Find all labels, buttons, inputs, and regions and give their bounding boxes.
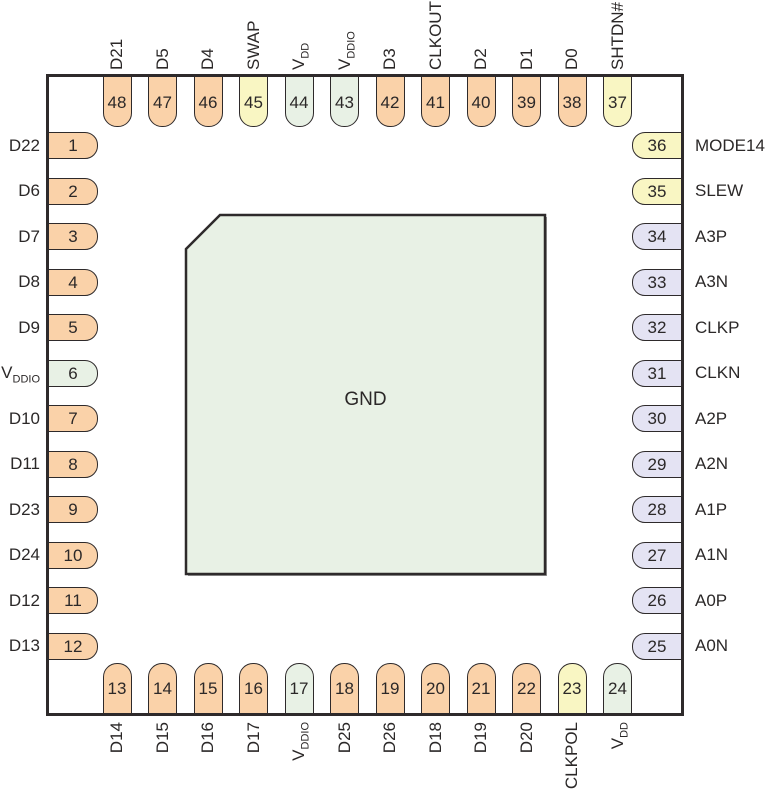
- pin-2-label: D6: [0, 181, 40, 201]
- pin-30: 30: [632, 405, 684, 432]
- pin-21: 21: [467, 663, 496, 716]
- pin-43-label: VDDIO: [335, 0, 355, 70]
- pin-27-number: 27: [648, 547, 667, 564]
- pin-7-label: D10: [0, 409, 40, 429]
- pin-9-number: 9: [68, 501, 77, 518]
- pin-22-label-text: D20: [517, 722, 536, 753]
- pin-33-number: 33: [648, 274, 667, 291]
- pin-25-label: A0N: [695, 636, 765, 656]
- pin-34-number: 34: [648, 228, 667, 245]
- pin-35-number: 35: [648, 183, 667, 200]
- pin-39: 39: [512, 74, 541, 127]
- pin-32-label-text: CLKP: [695, 318, 739, 337]
- pin-11-label-text: D12: [9, 591, 40, 610]
- pin-23-number: 23: [563, 680, 582, 697]
- pin-33: 33: [632, 269, 684, 296]
- pin-4-number: 4: [68, 274, 77, 291]
- pin-18: 18: [330, 663, 359, 716]
- pin-42: 42: [376, 74, 405, 127]
- pin-32-number: 32: [648, 319, 667, 336]
- pin-35: 35: [632, 178, 684, 205]
- pin-18-number: 18: [335, 680, 354, 697]
- pin-44-label: VDD: [289, 0, 309, 70]
- pin-47-label: D5: [153, 0, 173, 70]
- pin-31-label: CLKN: [695, 363, 765, 383]
- pin-19-label-text: D26: [380, 722, 399, 753]
- pin-41-label: CLKOUT: [426, 0, 446, 70]
- pin-20-number: 20: [426, 680, 445, 697]
- pin-15-label-text: D16: [198, 722, 217, 753]
- pin-48: 48: [103, 74, 132, 127]
- pin-11-label: D12: [0, 591, 40, 611]
- pin-16: 16: [239, 663, 268, 716]
- pin-8-number: 8: [68, 456, 77, 473]
- pin-45-number: 45: [244, 94, 263, 111]
- pin-5: 5: [46, 314, 98, 341]
- pin-31-label-text: CLKN: [695, 363, 740, 382]
- pin-44-label-subscript: DD: [299, 43, 311, 59]
- pin-6-label-text: V: [1, 363, 12, 382]
- pin-28: 28: [632, 496, 684, 523]
- pin-25: 25: [632, 633, 684, 660]
- pin-43-number: 43: [335, 94, 354, 111]
- pin-31: 31: [632, 360, 684, 387]
- pin-11-number: 11: [64, 592, 82, 609]
- pin-37-label-text: SHTDN#: [608, 2, 627, 70]
- pin-37-label: SHTDN#: [608, 0, 628, 70]
- pin-46-label: D4: [198, 0, 218, 70]
- pin-46-number: 46: [199, 94, 218, 111]
- pin-19: 19: [376, 663, 405, 716]
- pin-7-number: 7: [68, 410, 77, 427]
- pin-12-label-text: D13: [9, 636, 40, 655]
- pin-45-label-text: SWAP: [244, 21, 263, 70]
- pin-27-label: A1N: [695, 545, 765, 565]
- pin-6: 6: [46, 360, 98, 387]
- pin-11: 11: [46, 587, 98, 614]
- pin-40: 40: [467, 74, 496, 127]
- pin-37: 37: [603, 74, 632, 127]
- pin-27: 27: [632, 542, 684, 569]
- pin-10-label-text: D24: [9, 545, 40, 564]
- pin-15-number: 15: [199, 680, 218, 697]
- pin-45-label: SWAP: [244, 0, 264, 70]
- pin-36-number: 36: [648, 137, 667, 154]
- pin-20-label: D18: [426, 722, 446, 795]
- pin-22: 22: [512, 663, 541, 716]
- pin-22-number: 22: [517, 680, 536, 697]
- pin-40-number: 40: [472, 94, 491, 111]
- pin-21-number: 21: [472, 680, 491, 697]
- pin-8-label-text: D11: [10, 454, 40, 473]
- pin-30-number: 30: [648, 410, 667, 427]
- pin-47-label-text: D5: [153, 48, 172, 70]
- pin-20-label-text: D18: [426, 722, 445, 753]
- pin-25-label-text: A0N: [695, 636, 728, 655]
- pin-12: 12: [46, 633, 98, 660]
- pin-38-number: 38: [563, 94, 582, 111]
- pin-2: 2: [46, 178, 98, 205]
- pin-32: 32: [632, 314, 684, 341]
- pin-6-number: 6: [68, 365, 77, 382]
- pin-48-label: D21: [107, 0, 127, 70]
- pin-10-label: D24: [0, 545, 40, 565]
- pin-28-number: 28: [648, 501, 667, 518]
- pin-5-label: D9: [0, 318, 40, 338]
- pin-9-label: D23: [0, 500, 40, 520]
- pin-34-label: A3P: [695, 227, 765, 247]
- pin-38: 38: [558, 74, 587, 127]
- pin-5-label-text: D9: [18, 318, 40, 337]
- pin-23: 23: [558, 663, 587, 716]
- pin-37-number: 37: [608, 94, 627, 111]
- pin-13-label: D14: [107, 722, 127, 795]
- pin-33-label: A3N: [695, 272, 765, 292]
- pin-17-label: VDDIO: [289, 722, 309, 795]
- pin-16-number: 16: [244, 680, 263, 697]
- pin-15: 15: [194, 663, 223, 716]
- pin-39-label-text: D1: [517, 48, 536, 70]
- pin-30-label: A2P: [695, 409, 765, 429]
- pin-45: 45: [239, 74, 268, 127]
- pin-32-label: CLKP: [695, 318, 765, 338]
- pin-14-label: D15: [153, 722, 173, 795]
- pin-14-number: 14: [153, 680, 172, 697]
- pin-26-number: 26: [648, 592, 667, 609]
- pin-34: 34: [632, 223, 684, 250]
- pin-43-label-text: V: [335, 59, 354, 70]
- pin-31-number: 31: [648, 365, 667, 382]
- pin-19-label: D26: [380, 722, 400, 795]
- pin-28-label: A1P: [695, 500, 765, 520]
- pin-18-label: D25: [335, 722, 355, 795]
- pin-48-number: 48: [108, 94, 127, 111]
- pin-12-number: 12: [64, 638, 83, 655]
- pin-42-label: D3: [380, 0, 400, 70]
- pin-9: 9: [46, 496, 98, 523]
- pin-41: 41: [421, 74, 450, 127]
- pin-1-label-text: D22: [9, 136, 40, 155]
- pin-41-number: 41: [426, 94, 445, 111]
- pin-33-label-text: A3N: [695, 272, 728, 291]
- pin-41-label-text: CLKOUT: [426, 1, 445, 70]
- pin-7: 7: [46, 405, 98, 432]
- pin-22-label: D20: [517, 722, 537, 795]
- pin-39-label: D1: [517, 0, 537, 70]
- pin-17-label-subscript: DDIO: [299, 722, 311, 750]
- pin-27-label-text: A1N: [695, 545, 728, 564]
- pin-44-label-text: V: [289, 59, 308, 70]
- pin-35-label: SLEW: [695, 181, 765, 201]
- pin-10: 10: [46, 542, 98, 569]
- pin-36-label-text: MODE14: [695, 136, 765, 155]
- pin-29-label: A2N: [695, 454, 765, 474]
- pin-43-label-subscript: DDIO: [345, 31, 357, 59]
- pinout-diagram: GND 48D2147D546D445SWAP44VDD43VDDIO42D34…: [0, 0, 765, 795]
- pin-21-label-text: D19: [471, 722, 490, 753]
- pin-39-number: 39: [517, 94, 536, 111]
- pin-48-label-text: D21: [107, 39, 126, 70]
- pin-47-number: 47: [153, 94, 172, 111]
- pin-26-label: A0P: [695, 591, 765, 611]
- pin-42-label-text: D3: [380, 48, 399, 70]
- pin-20: 20: [421, 663, 450, 716]
- pin-2-label-text: D6: [18, 181, 40, 200]
- pin-21-label: D19: [471, 722, 491, 795]
- pin-6-label: VDDIO: [0, 363, 40, 383]
- pin-13-label-text: D14: [107, 722, 126, 753]
- pin-13-number: 13: [108, 680, 127, 697]
- pin-7-label-text: D10: [9, 409, 40, 428]
- pin-14-label-text: D15: [153, 722, 172, 753]
- pin-4-label: D8: [0, 272, 40, 292]
- pin-28-label-text: A1P: [695, 500, 727, 519]
- pin-12-label: D13: [0, 636, 40, 656]
- pin-29-label-text: A2N: [695, 454, 728, 473]
- pin-1: 1: [46, 132, 98, 159]
- pin-38-label: D0: [562, 0, 582, 70]
- pin-23-label: CLKPOL: [562, 722, 582, 795]
- pin-16-label: D17: [244, 722, 264, 795]
- pin-2-number: 2: [68, 183, 77, 200]
- pin-6-label-subscript: DDIO: [13, 373, 41, 385]
- pin-24-label: VDD: [608, 722, 628, 795]
- pin-25-number: 25: [648, 638, 667, 655]
- pin-1-number: 1: [68, 137, 77, 154]
- pin-13: 13: [103, 663, 132, 716]
- pin-1-label: D22: [0, 136, 40, 156]
- pin-4-label-text: D8: [18, 272, 40, 291]
- pin-46-label-text: D4: [198, 48, 217, 70]
- pin-17-label-text: V: [289, 750, 308, 761]
- pin-47: 47: [148, 74, 177, 127]
- pin-24-label-subscript: DD: [618, 722, 630, 738]
- pin-14: 14: [148, 663, 177, 716]
- pin-17: 17: [285, 663, 314, 716]
- pin-29-number: 29: [648, 456, 667, 473]
- pin-19-number: 19: [381, 680, 400, 697]
- pin-29: 29: [632, 451, 684, 478]
- pin-3-number: 3: [68, 228, 77, 245]
- pin-24-label-text: V: [608, 738, 627, 749]
- pin-44: 44: [285, 74, 314, 127]
- pin-40-label-text: D2: [471, 48, 490, 70]
- pin-8-label: D11: [0, 454, 40, 474]
- pin-10-number: 10: [64, 547, 83, 564]
- pin-26-label-text: A0P: [695, 591, 727, 610]
- pin-46: 46: [194, 74, 223, 127]
- pin-35-label-text: SLEW: [695, 181, 743, 200]
- pin-40-label: D2: [471, 0, 491, 70]
- pin-3-label-text: D7: [18, 227, 40, 246]
- pin-5-number: 5: [68, 319, 77, 336]
- pin-34-label-text: A3P: [695, 227, 727, 246]
- pin-43: 43: [330, 74, 359, 127]
- pin-4: 4: [46, 269, 98, 296]
- pin-26: 26: [632, 587, 684, 614]
- gnd-pad-label: GND: [186, 390, 545, 410]
- pin-44-number: 44: [290, 94, 309, 111]
- pin-23-label-text: CLKPOL: [562, 722, 581, 789]
- pin-8: 8: [46, 451, 98, 478]
- pin-15-label: D16: [198, 722, 218, 795]
- pin-36-label: MODE14: [695, 136, 765, 156]
- pin-9-label-text: D23: [9, 500, 40, 519]
- pin-18-label-text: D25: [335, 722, 354, 753]
- pin-16-label-text: D17: [244, 722, 263, 753]
- pin-3: 3: [46, 223, 98, 250]
- pin-24: 24: [603, 663, 632, 716]
- pin-42-number: 42: [381, 94, 400, 111]
- pin-3-label: D7: [0, 227, 40, 247]
- pin-36: 36: [632, 132, 684, 159]
- pin-24-number: 24: [608, 680, 627, 697]
- pin-30-label-text: A2P: [695, 409, 727, 428]
- pin-38-label-text: D0: [562, 48, 581, 70]
- pin-17-number: 17: [290, 680, 309, 697]
